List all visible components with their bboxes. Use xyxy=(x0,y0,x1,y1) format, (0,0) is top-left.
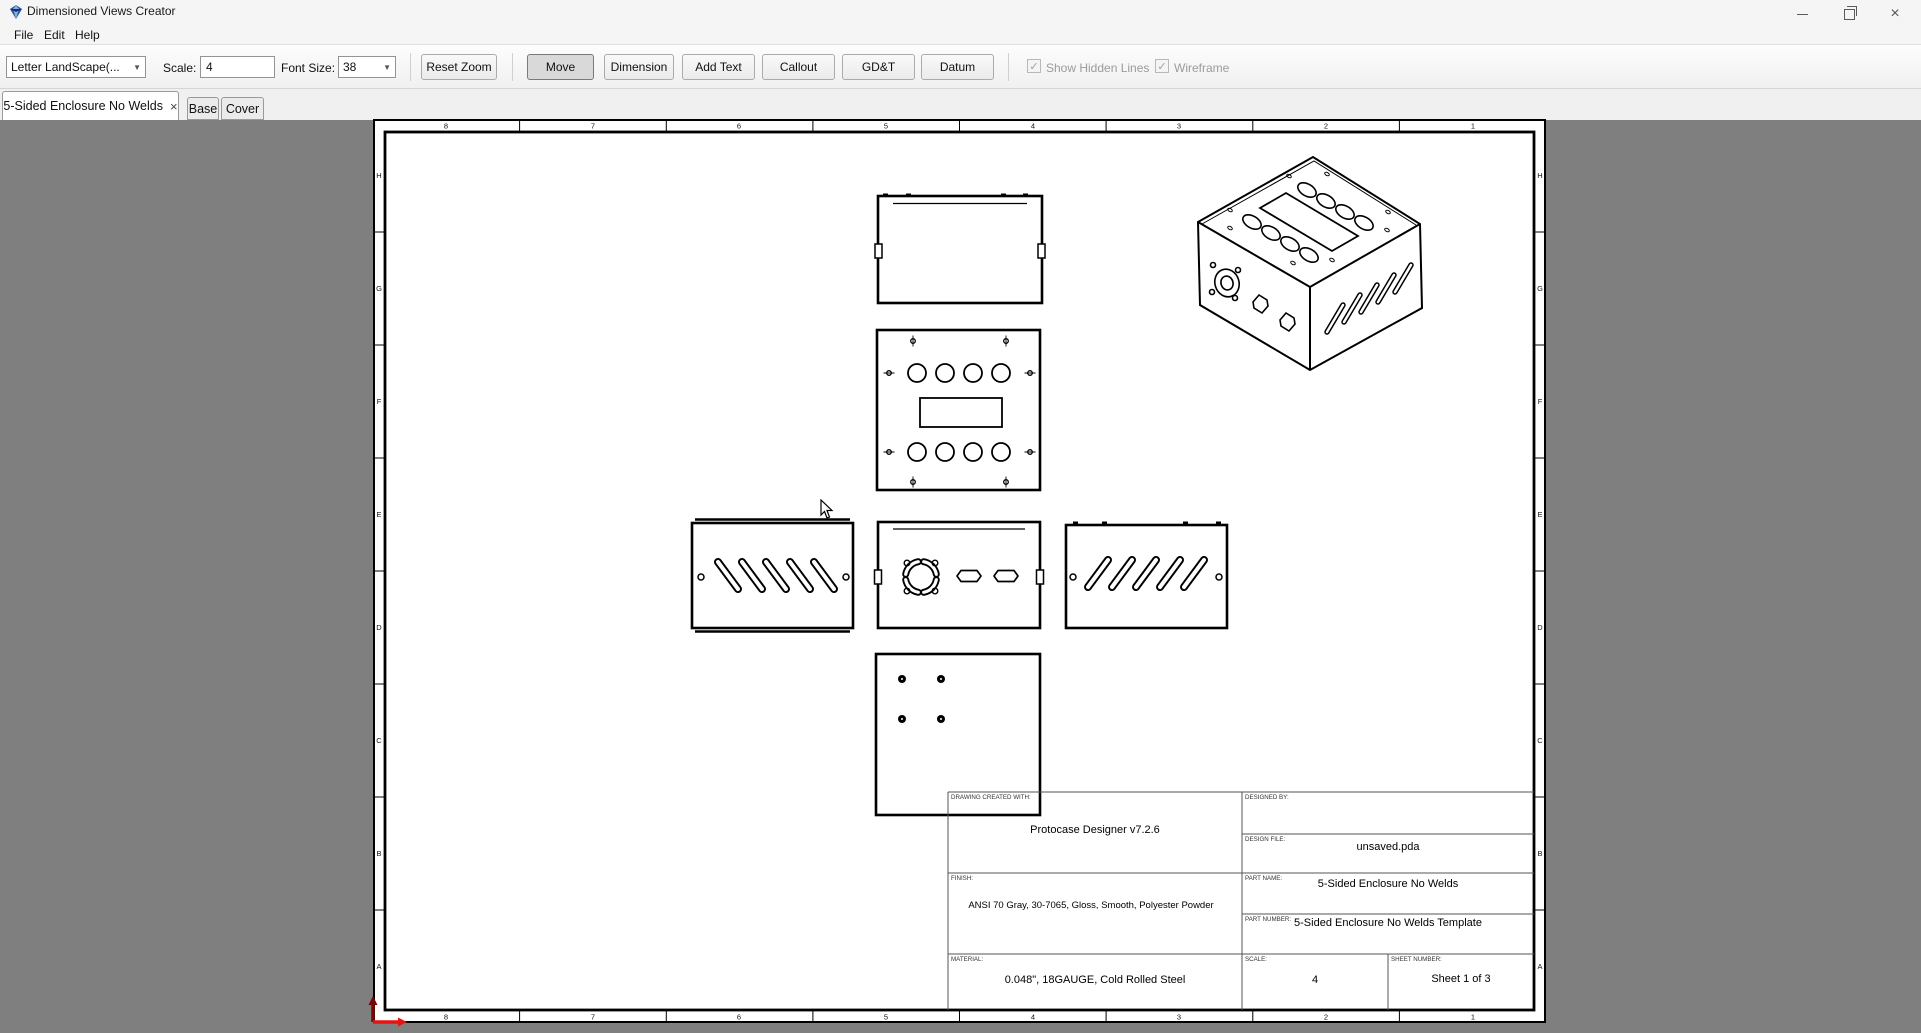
toolbar-separator xyxy=(512,53,513,81)
value-sheet-number: Sheet 1 of 3 xyxy=(1431,973,1490,985)
toolbar: Letter LandScape(... ▼ Scale: 4 Font Siz… xyxy=(0,45,1921,89)
gdt-button[interactable]: GD&T xyxy=(842,54,915,80)
chevron-down-icon: ▼ xyxy=(383,63,391,72)
ruler-row-label: E xyxy=(376,510,381,519)
restore-icon xyxy=(1844,9,1855,20)
tab-label: Cover xyxy=(226,102,259,116)
toolbar-separator xyxy=(1008,53,1009,81)
label-finish: FINISH: xyxy=(951,875,973,882)
ruler-row-label: F xyxy=(377,397,382,406)
ruler-row-label: H xyxy=(376,171,381,180)
close-button[interactable]: × xyxy=(1872,0,1918,28)
tab-cover[interactable]: Cover xyxy=(221,97,264,120)
ruler-col-label: 7 xyxy=(591,1013,595,1022)
value-part-name: 5-Sided Enclosure No Welds xyxy=(1318,878,1459,890)
value-material: 0.048", 18GAUGE, Cold Rolled Steel xyxy=(1005,974,1186,986)
show-hidden-lines-checkbox[interactable]: ✓ xyxy=(1027,59,1041,73)
wireframe-checkbox[interactable]: ✓ xyxy=(1155,59,1169,73)
toolbar-separator xyxy=(410,53,411,81)
drawing-sheet: 8 7 6 5 4 3 2 1 8 7 6 5 4 3 2 1 H G F E … xyxy=(365,111,1554,1031)
callout-button[interactable]: Callout xyxy=(762,54,835,80)
ruler-col-label: 8 xyxy=(444,122,448,131)
ruler-col-label: 1 xyxy=(1471,1013,1475,1022)
ruler-row-label: B xyxy=(1537,849,1542,858)
font-size-label: Font Size: xyxy=(281,61,335,75)
wireframe-label: Wireframe xyxy=(1174,61,1229,75)
ruler-row-label: C xyxy=(1537,736,1543,745)
label-part-number: PART NUMBER: xyxy=(1245,916,1291,923)
menu-file[interactable]: File xyxy=(9,26,38,44)
ruler-row-label: D xyxy=(1537,623,1543,632)
ruler-col-label: 2 xyxy=(1324,1013,1328,1022)
ruler-row-label: G xyxy=(1537,284,1543,293)
view-left-side[interactable] xyxy=(692,520,853,632)
page-size-dropdown[interactable]: Letter LandScape(... ▼ xyxy=(6,56,146,78)
ruler-col-label: 1 xyxy=(1471,122,1475,131)
ruler-row-label: A xyxy=(376,962,381,971)
ruler-row-label: E xyxy=(1537,510,1542,519)
chevron-down-icon: ▼ xyxy=(133,63,141,72)
check-icon: ✓ xyxy=(1157,60,1166,73)
menu-bar: File Edit Help xyxy=(0,25,1921,45)
scale-label: Scale: xyxy=(163,61,196,75)
drawing-canvas[interactable]: 8 7 6 5 4 3 2 1 8 7 6 5 4 3 2 1 H G F E … xyxy=(0,120,1921,1033)
ruler-col-label: 3 xyxy=(1177,122,1181,131)
view-right-side[interactable] xyxy=(1066,522,1227,629)
label-scale: SCALE: xyxy=(1245,956,1267,963)
view-front-panel[interactable] xyxy=(877,330,1040,490)
tab-label: Base xyxy=(189,102,218,116)
label-created-with: DRAWING CREATED WITH: xyxy=(951,794,1031,801)
window-title: Dimensioned Views Creator xyxy=(27,4,176,18)
tab-close-icon[interactable]: × xyxy=(170,99,178,114)
tab-label: 5-Sided Enclosure No Welds xyxy=(3,99,163,113)
view-bottom[interactable] xyxy=(876,654,1040,815)
move-button[interactable]: Move xyxy=(527,54,594,80)
view-center[interactable] xyxy=(875,522,1044,628)
ruler-row-label: C xyxy=(376,736,382,745)
label-material: MATERIAL: xyxy=(951,956,983,963)
ruler-col-label: 7 xyxy=(591,122,595,131)
close-icon: × xyxy=(1890,6,1899,22)
value-part-number: 5-Sided Enclosure No Welds Template xyxy=(1294,917,1482,929)
title-bar: Dimensioned Views Creator × xyxy=(0,0,1921,25)
ruler-col-label: 4 xyxy=(1031,1013,1035,1022)
scale-input[interactable]: 4 xyxy=(200,56,275,78)
label-sheet-number: SHEET NUMBER: xyxy=(1391,956,1442,963)
check-icon: ✓ xyxy=(1029,60,1038,73)
app-icon xyxy=(8,4,24,20)
ruler-col-label: 4 xyxy=(1031,122,1035,131)
menu-edit[interactable]: Edit xyxy=(39,26,70,44)
label-part-name: PART NAME: xyxy=(1245,875,1282,882)
ruler-col-label: 5 xyxy=(884,122,888,131)
value-design-file: unsaved.pda xyxy=(1357,841,1421,853)
minimize-icon xyxy=(1797,14,1808,15)
label-designed-by: DESIGNED BY: xyxy=(1245,794,1289,801)
datum-button[interactable]: Datum xyxy=(921,54,994,80)
dimension-button[interactable]: Dimension xyxy=(604,54,674,80)
ruler-col-label: 6 xyxy=(737,1013,741,1022)
reset-zoom-button[interactable]: Reset Zoom xyxy=(421,54,497,80)
ruler-row-label: D xyxy=(376,623,382,632)
label-design-file: DESIGN FILE: xyxy=(1245,836,1286,843)
ruler-row-label: A xyxy=(1537,962,1542,971)
ruler-row-label: B xyxy=(376,849,381,858)
tab-5-sided-enclosure[interactable]: 5-Sided Enclosure No Welds × xyxy=(2,91,179,120)
add-text-button[interactable]: Add Text xyxy=(682,54,755,80)
value-created-with: Protocase Designer v7.2.6 xyxy=(1030,824,1160,836)
ruler-col-label: 8 xyxy=(444,1013,448,1022)
ruler-row-label: G xyxy=(376,284,382,293)
restore-button[interactable] xyxy=(1826,0,1872,28)
mouse-cursor xyxy=(820,499,836,521)
ruler-row-label: F xyxy=(1538,397,1543,406)
ruler-col-label: 6 xyxy=(737,122,741,131)
value-scale: 4 xyxy=(1312,974,1318,986)
show-hidden-lines-label: Show Hidden Lines xyxy=(1046,61,1149,75)
ruler-col-label: 5 xyxy=(884,1013,888,1022)
font-size-value: 38 xyxy=(343,60,356,74)
ruler-col-label: 2 xyxy=(1324,122,1328,131)
minimize-button[interactable] xyxy=(1779,0,1825,28)
menu-help[interactable]: Help xyxy=(70,26,105,44)
font-size-dropdown[interactable]: 38 ▼ xyxy=(338,56,396,78)
page-size-value: Letter LandScape(... xyxy=(11,60,120,74)
tab-base[interactable]: Base xyxy=(187,97,219,120)
ruler-row-label: H xyxy=(1537,171,1542,180)
scale-value: 4 xyxy=(206,60,213,74)
ruler-col-label: 3 xyxy=(1177,1013,1181,1022)
view-top[interactable] xyxy=(875,194,1045,304)
value-finish: ANSI 70 Gray, 30-7065, Gloss, Smooth, Po… xyxy=(968,900,1213,911)
